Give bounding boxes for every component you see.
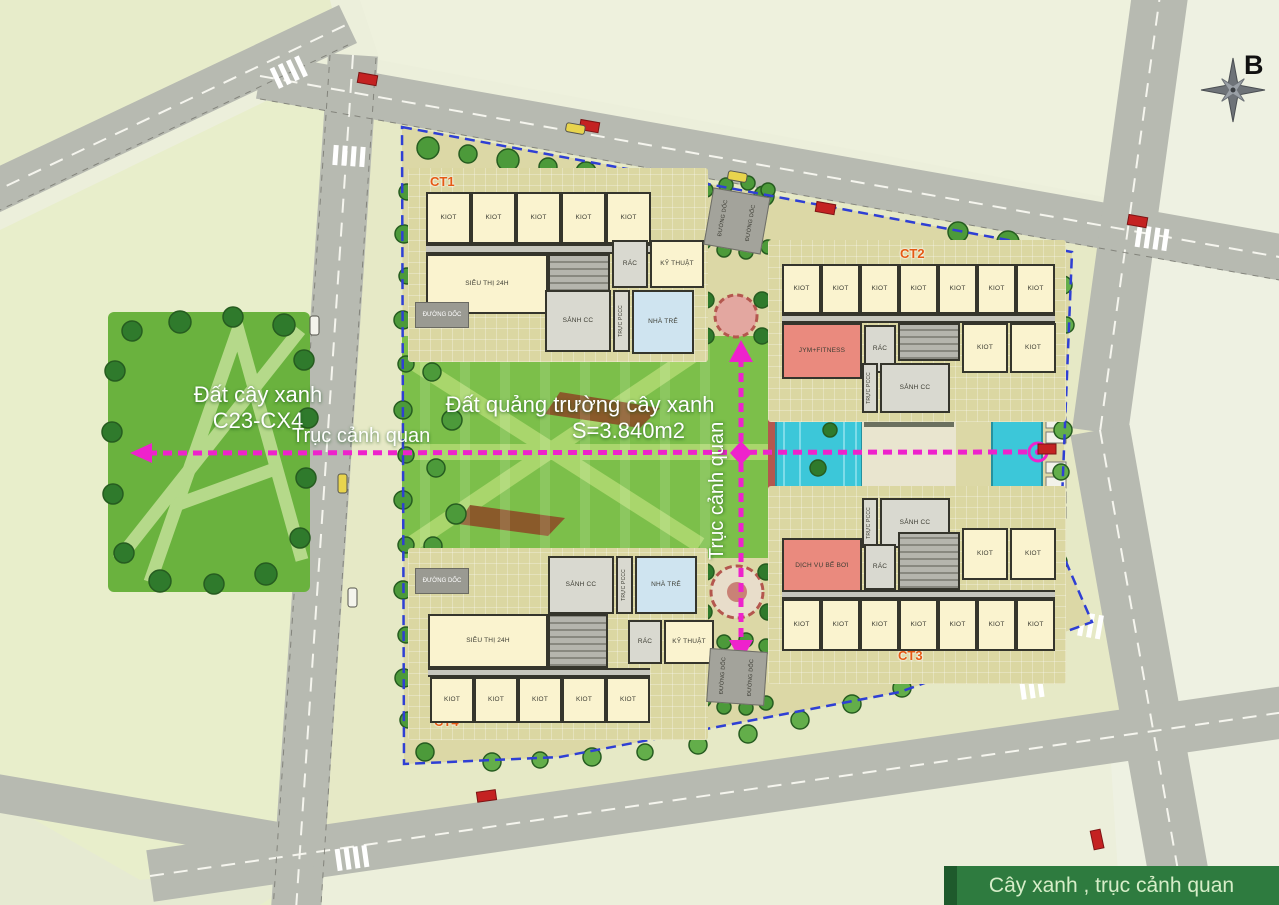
room-kiot: KIOT bbox=[938, 264, 977, 314]
room-kiot: KIOT bbox=[782, 599, 821, 651]
room-technical: KỸ THUẬT bbox=[664, 620, 714, 664]
ramp-ct4: ĐƯỜNG DỐC bbox=[415, 568, 469, 594]
room-kiot: KIOT bbox=[821, 599, 860, 651]
room-trash: RÁC bbox=[612, 240, 648, 288]
room-kiot: KIOT bbox=[1016, 599, 1055, 651]
room-kiot: KIOT bbox=[899, 264, 938, 314]
room-technical: KỸ THUẬT bbox=[650, 240, 704, 288]
room-lobby: SẢNH CC bbox=[548, 556, 614, 614]
room-kiot: KIOT bbox=[860, 599, 899, 651]
room-gym: JYM+FITNESS bbox=[782, 323, 862, 379]
stair-core bbox=[548, 614, 608, 668]
room-kiot: KIOT bbox=[962, 528, 1008, 580]
room-fire-watch: TRỰC PCCC bbox=[862, 498, 878, 548]
room-lobby: SẢNH CC bbox=[545, 290, 611, 352]
room-fire-watch: TRỰC PCCC bbox=[613, 290, 630, 352]
room-kiot: KIOT bbox=[516, 192, 561, 244]
room-kiot: KIOT bbox=[1010, 323, 1056, 373]
room-supermarket: SIÊU THỊ 24H bbox=[428, 614, 548, 668]
legend-bar: Cây xanh , trục cảnh quan bbox=[944, 866, 1279, 905]
room-kiot: KIOT bbox=[474, 677, 518, 723]
room-kiot: KIOT bbox=[782, 264, 821, 314]
ct2-label: CT2 bbox=[900, 246, 925, 261]
stair-core bbox=[898, 323, 960, 361]
base-map bbox=[0, 0, 1279, 905]
room-kiot: KIOT bbox=[1010, 528, 1056, 580]
compass-north-label: B bbox=[1244, 50, 1264, 81]
room-kiot: KIOT bbox=[899, 599, 938, 651]
room-kiot: KIOT bbox=[606, 677, 650, 723]
room-kiot: KIOT bbox=[977, 599, 1016, 651]
corridor bbox=[782, 314, 1055, 323]
room-fire-watch: TRỰC PCCC bbox=[616, 556, 633, 614]
room-kiot: KIOT bbox=[561, 192, 606, 244]
room-kindergarten: NHÀ TRẺ bbox=[632, 290, 694, 354]
room-kiot: KIOT bbox=[962, 323, 1008, 373]
legend-edge bbox=[944, 866, 957, 905]
room-kiot: KIOT bbox=[821, 264, 860, 314]
room-lobby: SẢNH CC bbox=[880, 363, 950, 413]
room-kiot: KIOT bbox=[860, 264, 899, 314]
room-kiot: KIOT bbox=[938, 599, 977, 651]
ramp-bottom: ĐƯỜNG DỐC ĐƯỜNG DỐC bbox=[706, 648, 768, 706]
axis-vertical-label: Trục cảnh quan bbox=[706, 400, 729, 560]
room-kiot: KIOT bbox=[606, 192, 651, 244]
ramp-top: ĐƯỜNG DỐC ĐƯỜNG DỐC bbox=[703, 187, 770, 254]
room-kiot: KIOT bbox=[1016, 264, 1055, 314]
room-kiot: KIOT bbox=[562, 677, 606, 723]
room-trash: RÁC bbox=[864, 544, 896, 590]
room-kiot: KIOT bbox=[430, 677, 474, 723]
room-kiot: KIOT bbox=[977, 264, 1016, 314]
ct1-label: CT1 bbox=[430, 174, 455, 189]
room-pool-service: DỊCH VỤ BỂ BƠI bbox=[782, 538, 862, 594]
legend-label: Cây xanh , trục cảnh quan bbox=[989, 874, 1234, 898]
axis-horizontal-label: Trục cảnh quan bbox=[292, 425, 430, 448]
room-fire-watch: TRỰC PCCC bbox=[862, 363, 878, 413]
room-kiot: KIOT bbox=[471, 192, 516, 244]
room-trash: RÁC bbox=[628, 620, 662, 664]
corridor bbox=[428, 668, 650, 677]
room-kiot: KIOT bbox=[518, 677, 562, 723]
room-kiot: KIOT bbox=[426, 192, 471, 244]
plaza-label: Đất quảng trường cây xanh S=3.840m2 bbox=[430, 392, 730, 444]
room-kindergarten: NHÀ TRẺ bbox=[635, 556, 697, 614]
stair-core bbox=[898, 532, 960, 590]
site-plan: CT1 KIOT KIOT KIOT KIOT KIOT SIÊU THỊ 24… bbox=[0, 0, 1279, 905]
corridor bbox=[782, 590, 1055, 599]
ramp-ct1: ĐƯỜNG DỐC bbox=[415, 302, 469, 328]
